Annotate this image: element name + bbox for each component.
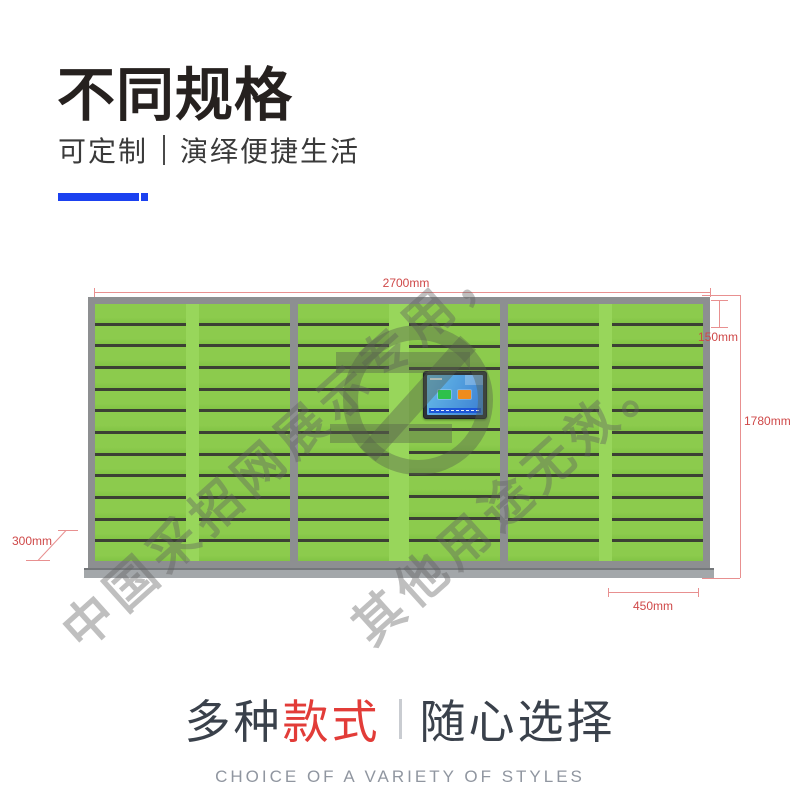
locker-door — [612, 347, 703, 369]
product-page: 不同规格 可定制 演绎便捷生活 中国采招网展示专用， 其他用途无效。 2700m… — [0, 0, 800, 800]
locker-door — [199, 542, 290, 561]
locker-door — [199, 434, 290, 456]
locker-door — [95, 499, 186, 521]
cabinet-divider-strip — [186, 304, 199, 561]
locker-door — [612, 434, 703, 456]
locker-cabinet — [88, 297, 710, 570]
dimension-tick — [608, 588, 609, 597]
dimension-label-column-width: 450mm — [607, 599, 699, 613]
locker-door — [409, 304, 500, 326]
locker-door — [409, 326, 500, 348]
locker-door — [508, 304, 599, 326]
locker-door — [298, 434, 389, 456]
locker-door — [95, 304, 186, 326]
locker-door — [95, 326, 186, 348]
locker-door — [95, 521, 186, 543]
dimension-line-column-width — [608, 592, 698, 593]
locker-column — [409, 304, 500, 561]
cabinet-frame-gap — [500, 304, 508, 561]
locker-door — [508, 542, 599, 561]
footer-title: 多种 款式 随心选择 — [0, 686, 800, 752]
locker-door — [298, 477, 389, 499]
locker-column — [508, 304, 599, 561]
locker-door — [199, 347, 290, 369]
locker-door — [508, 477, 599, 499]
locker-door — [95, 391, 186, 413]
locker-door — [298, 304, 389, 326]
subtitle-divider — [163, 135, 165, 165]
cabinet-divider-strip — [599, 304, 612, 561]
locker-door — [508, 326, 599, 348]
locker-door — [298, 347, 389, 369]
locker-door — [95, 347, 186, 369]
subtitle-right: 演绎便捷生活 — [180, 130, 360, 170]
dimension-label-width: 2700mm — [368, 276, 444, 290]
locker-door — [612, 369, 703, 391]
locker-door — [199, 499, 290, 521]
dimension-tick — [26, 560, 50, 561]
accent-bar — [58, 193, 139, 201]
locker-door — [409, 498, 500, 520]
dimension-tick — [698, 588, 699, 597]
locker-door — [508, 499, 599, 521]
dimension-tick — [711, 327, 728, 328]
locker-door — [199, 391, 290, 413]
dimension-tick — [711, 300, 728, 301]
locker-door — [95, 477, 186, 499]
locker-door — [95, 542, 186, 561]
footer-title-part1: 多种 — [185, 686, 283, 752]
locker-door — [298, 412, 389, 434]
locker-door — [508, 391, 599, 413]
dimension-tick — [58, 530, 78, 531]
dimension-label-height: 1780mm — [744, 414, 791, 428]
page-title: 不同规格 — [57, 48, 293, 132]
dimension-tick — [702, 578, 740, 579]
subtitle-left: 可定制 — [58, 130, 148, 170]
locker-door — [298, 542, 389, 561]
locker-door — [409, 454, 500, 476]
locker-door — [612, 456, 703, 478]
locker-column — [95, 304, 186, 561]
screen-panel — [409, 370, 500, 431]
locker-door — [508, 434, 599, 456]
locker-door — [95, 434, 186, 456]
screen-bottom-bar — [429, 408, 481, 413]
footer-subtitle-en: CHOICE OF A VARIETY OF STYLES — [0, 767, 800, 787]
screen-header-text — [430, 378, 442, 380]
page-subtitle: 可定制 演绎便捷生活 — [58, 130, 360, 170]
locker-door — [298, 326, 389, 348]
locker-door — [95, 369, 186, 391]
cabinet-frame-gap — [290, 304, 298, 561]
dimension-line-height — [740, 295, 741, 578]
locker-column — [612, 304, 703, 561]
dimension-line-cell-height — [719, 301, 720, 327]
locker-door — [612, 412, 703, 434]
locker-door — [508, 369, 599, 391]
locker-door — [298, 456, 389, 478]
locker-door — [612, 521, 703, 543]
locker-door — [409, 520, 500, 542]
locker-door — [199, 326, 290, 348]
dimension-label-cell-height: 150mm — [698, 330, 738, 344]
locker-door — [508, 412, 599, 434]
screen-buttons — [427, 390, 483, 399]
locker-door — [612, 326, 703, 348]
dimension-tick — [94, 288, 95, 297]
screen-display — [427, 375, 483, 415]
locker-door — [612, 304, 703, 326]
locker-door — [508, 456, 599, 478]
locker-door — [298, 521, 389, 543]
locker-door — [298, 391, 389, 413]
locker-door — [199, 304, 290, 326]
locker-door — [508, 521, 599, 543]
footer-divider — [399, 699, 402, 739]
locker-door — [199, 477, 290, 499]
locker-door — [199, 369, 290, 391]
locker-door — [199, 521, 290, 543]
dimension-line-width — [94, 292, 710, 293]
accent-dot — [141, 193, 148, 201]
footer-title-part3: 随心选择 — [420, 686, 616, 752]
locker-door — [612, 477, 703, 499]
locker-door — [95, 412, 186, 434]
locker-door — [612, 391, 703, 413]
dimension-label-depth: 300mm — [12, 534, 52, 548]
locker-column — [298, 304, 389, 561]
screen-orange-button — [458, 390, 471, 399]
locker-door — [409, 431, 500, 453]
locker-door — [409, 542, 500, 561]
locker-door — [409, 348, 500, 370]
locker-door — [199, 456, 290, 478]
screen-green-button — [438, 390, 451, 399]
locker-door — [298, 369, 389, 391]
locker-door — [409, 476, 500, 498]
locker-base — [84, 568, 714, 578]
locker-door-grid — [95, 304, 703, 561]
locker-door — [612, 499, 703, 521]
kiosk-screen — [423, 371, 487, 419]
locker-door — [508, 347, 599, 369]
footer-title-part2: 款式 — [283, 686, 381, 752]
locker-door — [95, 456, 186, 478]
footer: 多种 款式 随心选择 CHOICE OF A VARIETY OF STYLES — [0, 686, 800, 787]
locker-column — [199, 304, 290, 561]
locker-door — [199, 412, 290, 434]
dimension-tick — [702, 295, 740, 296]
cabinet-divider-strip — [389, 304, 409, 561]
locker-door — [612, 542, 703, 561]
locker-door — [298, 499, 389, 521]
